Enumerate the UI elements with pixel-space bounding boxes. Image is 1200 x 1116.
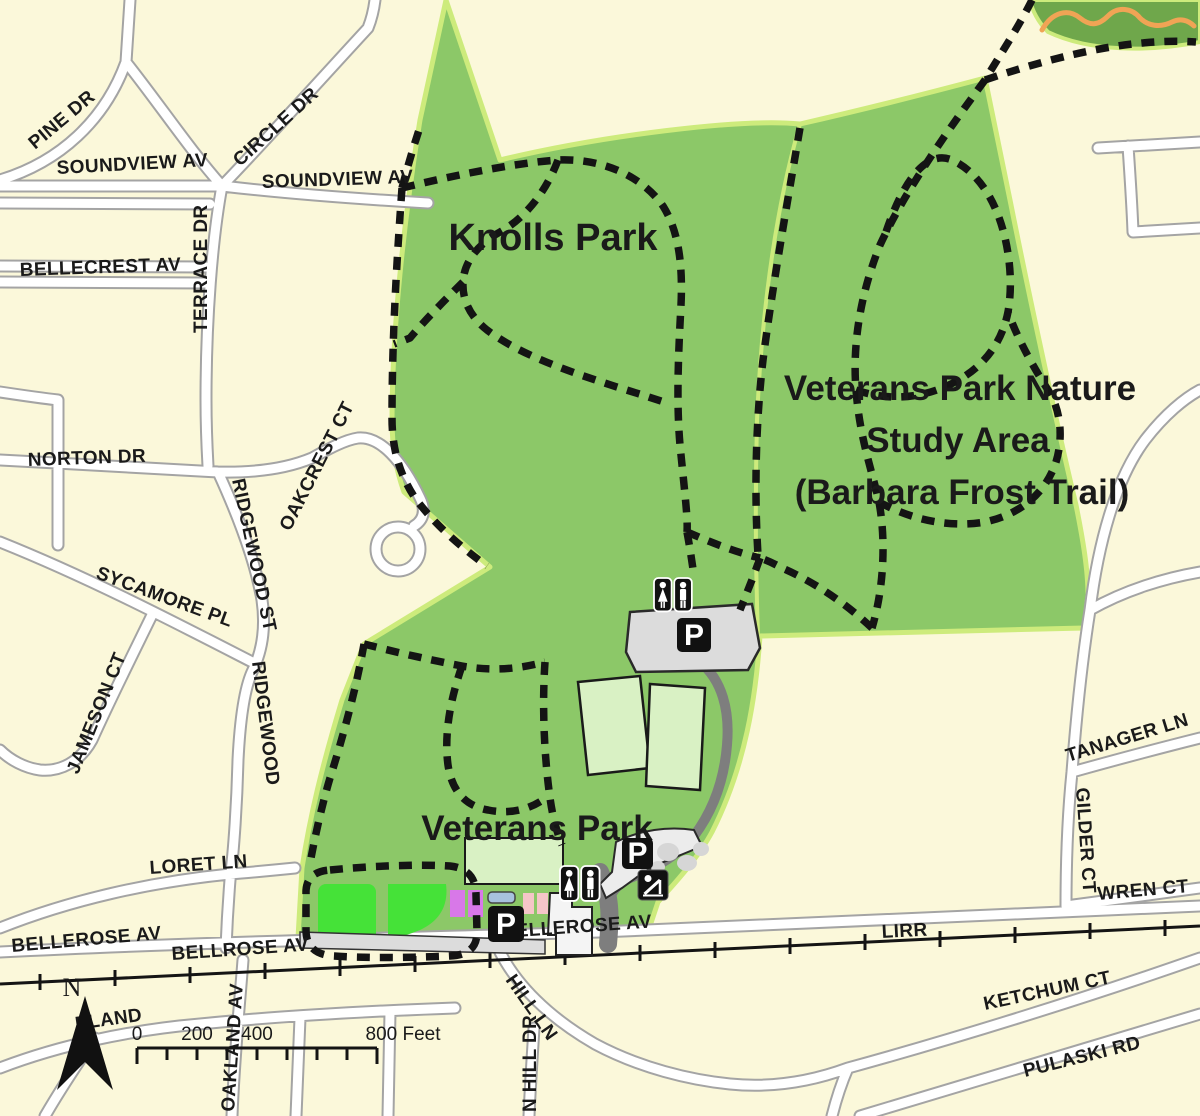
street-label-n-hill-dr: N HILL DR xyxy=(520,1015,541,1112)
svg-text:P: P xyxy=(684,619,704,652)
playground-icon xyxy=(638,870,668,900)
street-label-lirr: LIRR xyxy=(881,920,928,943)
scale-tick-800: 800 Feet xyxy=(366,1024,442,1045)
ballfield-1 xyxy=(578,676,650,775)
street-label-terrace-dr: TERRACE DR xyxy=(191,204,212,333)
svg-text:P: P xyxy=(496,908,516,941)
parking-icon-roadside: P xyxy=(488,906,524,942)
ballfield-2 xyxy=(646,684,705,790)
map-canvas: PINE DR SOUNDVIEW AV CIRCLE DR SOUNDVIEW… xyxy=(0,0,1200,1116)
court-purple-1 xyxy=(450,890,465,917)
scale-tick-400: 400 xyxy=(241,1024,273,1045)
label-nature-area-line1: Veterans Park Nature xyxy=(784,369,1136,408)
north-label: N xyxy=(63,973,82,1002)
court-pink-2 xyxy=(537,893,548,914)
parking-icon-south: P xyxy=(622,837,653,870)
court-pink-1 xyxy=(523,893,534,914)
label-nature-area-line2: Study Area xyxy=(866,421,1050,460)
pool xyxy=(488,892,515,903)
svg-text:P: P xyxy=(627,837,647,870)
label-knolls-park: Knolls Park xyxy=(448,217,658,259)
street-label-norton-dr: NORTON DR xyxy=(27,446,146,471)
parking-icon-main: P xyxy=(677,618,711,652)
label-nature-area-line3: (Barbara Frost Trail) xyxy=(795,473,1130,512)
scale-tick-0: 0 xyxy=(132,1024,143,1045)
scale-tick-200: 200 xyxy=(181,1024,213,1045)
label-veterans-park: Veterans Park xyxy=(421,809,653,848)
park-trail-map: PINE DR SOUNDVIEW AV CIRCLE DR SOUNDVIEW… xyxy=(0,0,1200,1116)
